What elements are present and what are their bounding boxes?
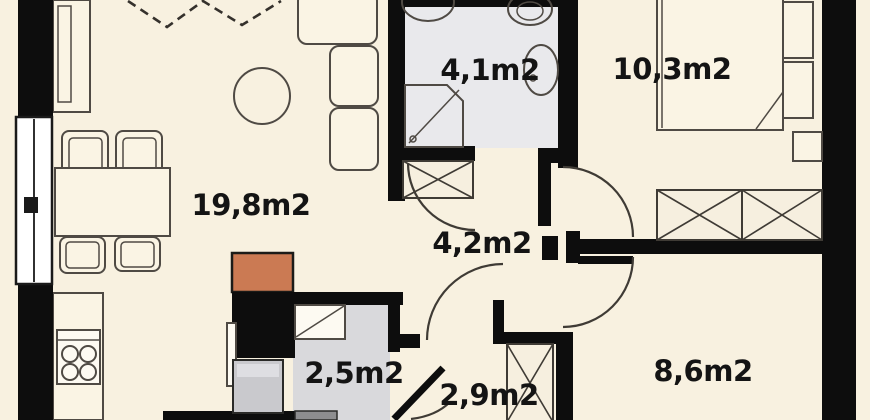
wall-segment bbox=[290, 292, 403, 305]
wall-segment bbox=[400, 334, 420, 348]
window bbox=[16, 117, 52, 284]
room-label-bathroom: 4,1m2 bbox=[440, 53, 539, 87]
wall-segment bbox=[388, 305, 400, 352]
wall-segment bbox=[578, 239, 823, 254]
room-label-storage: 2,5m2 bbox=[304, 356, 403, 390]
room-label-small-room: 8,6m2 bbox=[653, 354, 752, 388]
wall-segment bbox=[558, 0, 578, 168]
wall-segment bbox=[405, 0, 558, 7]
window-mullion bbox=[24, 197, 38, 213]
fridge-highlight bbox=[237, 364, 279, 377]
room-label-corridor: 2,9m2 bbox=[439, 378, 538, 412]
wall-segment bbox=[556, 332, 573, 420]
sofa-cushion bbox=[330, 108, 378, 170]
sofa-cushion bbox=[298, 0, 377, 44]
room-label-bedroom: 10,3m2 bbox=[613, 52, 732, 86]
kitchen-unit-orange bbox=[232, 253, 293, 292]
bedside-shelf bbox=[783, 2, 813, 58]
floor-plan-svg: 19,8m2 4,1m2 10,3m2 4,2m2 2,5m2 2,9m2 8,… bbox=[0, 0, 870, 420]
room-label-living: 19,8m2 bbox=[192, 188, 311, 222]
wall-segment bbox=[388, 146, 475, 161]
door-jamb bbox=[542, 236, 558, 260]
wall-segment bbox=[538, 148, 551, 226]
room-label-hallway: 4,2m2 bbox=[432, 226, 531, 260]
nightstand bbox=[793, 132, 822, 161]
sofa-cushion bbox=[330, 46, 378, 106]
wall-segment bbox=[232, 292, 295, 358]
wall-segment bbox=[578, 256, 633, 264]
wall-segment bbox=[18, 284, 53, 420]
wall-segment bbox=[18, 0, 53, 118]
washing-machine bbox=[295, 411, 337, 420]
bedside-shelf bbox=[783, 62, 813, 118]
door-jamb bbox=[566, 231, 580, 263]
wall-segment bbox=[822, 0, 856, 420]
dining-table bbox=[55, 168, 170, 236]
wall-segment bbox=[493, 300, 504, 344]
